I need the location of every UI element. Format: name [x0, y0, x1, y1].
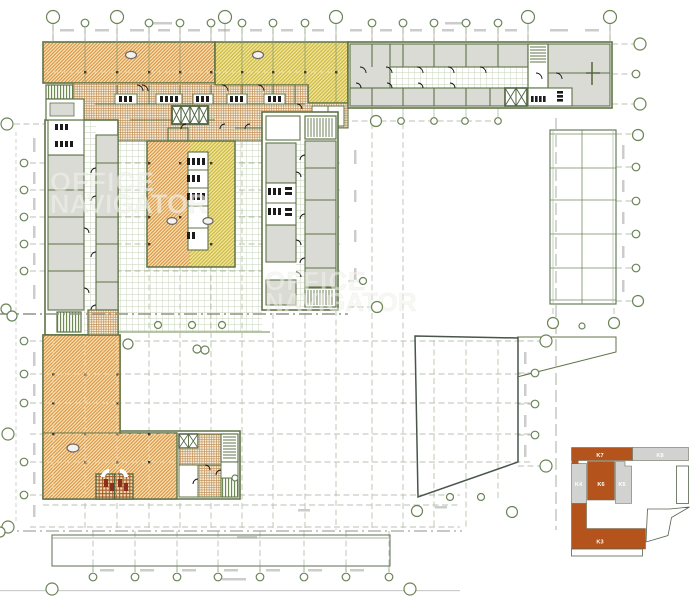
- svg-text:K7: K7: [596, 453, 603, 459]
- svg-text:NAVIGATOR: NAVIGATOR: [265, 287, 417, 317]
- svg-text:K4: K4: [575, 482, 583, 488]
- svg-text:K3: K3: [596, 540, 603, 546]
- svg-text:K8: K8: [656, 453, 663, 459]
- svg-text:K5: K5: [618, 482, 625, 488]
- svg-text:K6: K6: [597, 482, 604, 488]
- svg-text:NAVIGATOR: NAVIGATOR: [50, 189, 208, 219]
